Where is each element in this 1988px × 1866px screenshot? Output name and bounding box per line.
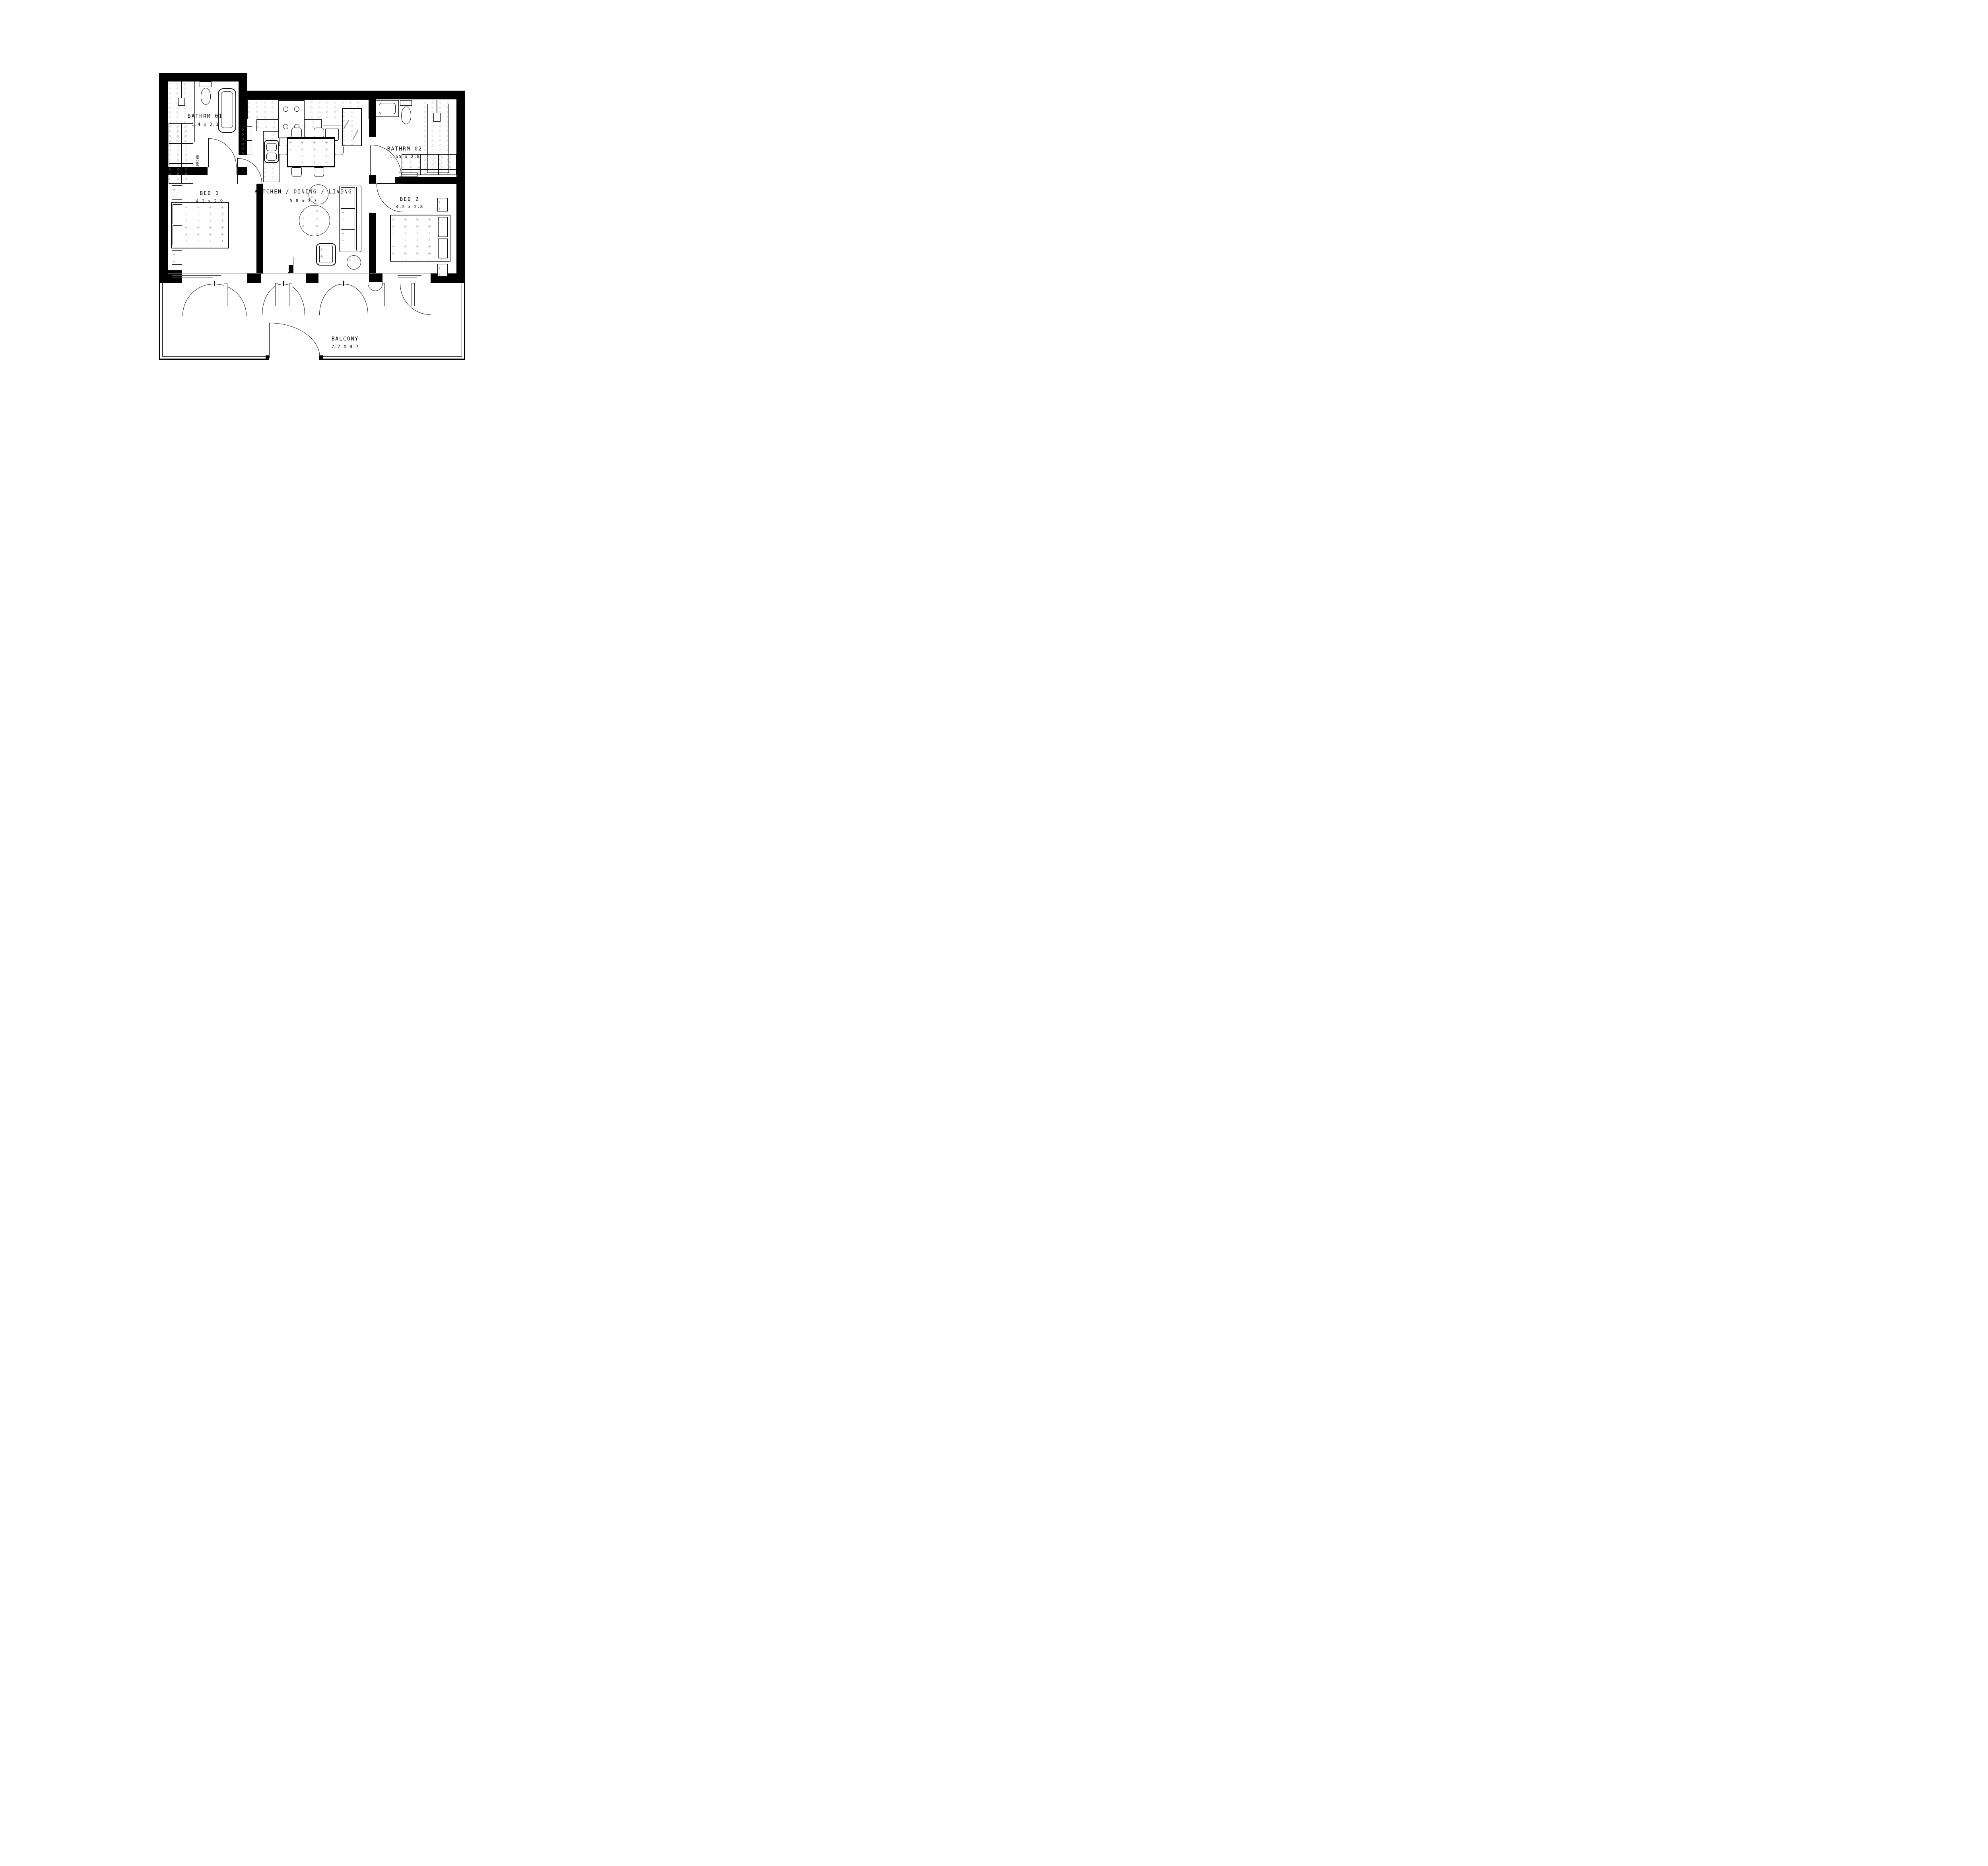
pier-bottom-2 <box>247 273 261 283</box>
wall-top-main <box>239 91 465 99</box>
wall-bed1-kitchen <box>256 184 263 274</box>
sill-bed2-b <box>398 277 417 277</box>
dining-chair-top-1 <box>291 128 302 137</box>
dining-chair-bottom-1 <box>291 167 302 177</box>
bath01-door-swing <box>209 138 237 167</box>
sofa-cushion-3: + + + + + + + + + + + + + + + + + + + + … <box>341 229 355 249</box>
stove-burner-3 <box>283 124 288 129</box>
label-kitchen-dims: 5.8 x 3.7 <box>290 198 317 204</box>
bed1-nightstand-top: + + + + + + + + + + + + + + + + + + + + … <box>172 185 182 200</box>
bath02-toilet-bowl <box>401 107 411 124</box>
bed2-wardrobe-div-h <box>402 169 456 170</box>
living-balcony-door-meet <box>343 281 344 286</box>
bed1-pillow-2 <box>173 225 182 245</box>
label-kitchen-name: KITCHEN / DINING / LIVING <box>254 189 352 195</box>
bed2-wardrobe-label: WARDROBE <box>420 178 439 182</box>
bed1-wardrobe-div-h2 <box>169 163 193 164</box>
bed2-nightstand-bottom: + + + + + + + + + + + + + + + + + + + + … <box>437 264 448 277</box>
wall-left <box>159 73 168 283</box>
label-bathrm01-name: BATHRM 01 <box>188 114 223 120</box>
bed2-pillow-2 <box>438 239 448 258</box>
fridge-hatch: ○ ○ ○ ○ ○ ○ ○ ○ ○ ○ ○ ○ ○ ○ ○ ○ ○ ○ ○ ○ … <box>343 109 361 145</box>
media-unit-base <box>289 265 293 272</box>
dining-table-hatch: + + + + + + + + + + + + + + + + + + + + … <box>289 139 333 165</box>
bath01-toilet-tank <box>200 81 212 87</box>
bed1-nightstand-bottom: + + + + + + + + + + + + + + + + + + + + … <box>172 250 182 265</box>
pier-bottom-3 <box>306 273 318 283</box>
bed1-balcony-door-meet <box>214 281 215 286</box>
bed2-wardrobe-div-v1 <box>420 154 421 175</box>
label-bathrm02-name: BATHRM 02 <box>387 146 422 152</box>
floor-edge-line <box>168 273 456 274</box>
wall-right <box>456 91 465 283</box>
pier-bottom-5 <box>431 273 465 283</box>
pier-bottom-1 <box>159 270 182 283</box>
wall-top-bath01 <box>159 73 247 81</box>
bed1-wardrobe-div-h1 <box>169 143 193 144</box>
oven-drawer-2 <box>266 153 277 161</box>
label-balcony-dims: 7.7 X 9.7 <box>332 344 359 349</box>
bed2-pillow-1 <box>438 217 448 237</box>
bed2-wardrobe-div-v2 <box>438 154 439 175</box>
wall-kitchen-bath02 <box>369 99 376 137</box>
bed2-wardrobe-front <box>402 187 456 187</box>
floor-plan: ○ ○ ○ ○ ○ ○ ○ ○ ○ ○ ○ ○ ○ ○ ○ ○ ○ ○ ○ ○ … <box>0 0 614 438</box>
label-balcony-name: BALCONY <box>332 336 359 342</box>
wall-bed2-living <box>369 213 376 273</box>
dining-chair-bottom-2 <box>314 167 324 177</box>
sill-bed1-b <box>172 277 213 277</box>
pier-bottom-4 <box>369 273 382 283</box>
label-bed1-dims: 4.2 x 2.9 <box>196 199 223 204</box>
bed1-door-swing <box>238 158 262 184</box>
sill-bed2-a <box>398 275 421 276</box>
bed2-nightstand-top: + + + + + + + + + + + + + + + + + + + + … <box>437 198 448 211</box>
label-bed1-name: BED 1 <box>200 191 219 197</box>
oven-drawer-1 <box>266 143 277 151</box>
dining-chair-right <box>335 145 344 155</box>
kitchen-balcony-door-meet <box>283 281 284 286</box>
stove-burner-2 <box>294 107 299 112</box>
coffee-table-large: × × × × × × × × × × × × × × × × × × × × … <box>299 205 330 236</box>
dining-chair-top-2 <box>314 128 324 137</box>
bath02-toilet-tank <box>400 100 412 106</box>
window-frame-kitchen-right <box>289 283 292 306</box>
sill-bed1-a <box>172 275 221 276</box>
stove-burner-1 <box>283 107 288 112</box>
bath02-shower-head <box>433 113 441 122</box>
bath01-toilet-bowl <box>201 88 211 105</box>
window-frame-kitchen-left <box>275 283 278 306</box>
bath01-shower-head <box>178 98 185 106</box>
dining-chair-left <box>278 145 287 155</box>
window-frame-bed2 <box>412 283 415 306</box>
hall-niche-divider <box>241 140 252 141</box>
sofa-cushion-2: + + + + + + + + + + + + + + + + + + + + … <box>341 208 355 228</box>
side-table: × × × × × × × × × × × × × × × × × × × × … <box>347 255 361 270</box>
bed1-wardrobe-div-v <box>181 123 182 184</box>
bath01-shower-glass <box>194 81 195 142</box>
bath02-shower-stem <box>437 100 437 114</box>
window-frame-bed1 <box>224 283 227 306</box>
label-bathrm02-dims: 1.55 x 2.8 <box>390 154 420 159</box>
label-bed2-dims: 4.2 x 2.8 <box>396 204 423 209</box>
label-bed2-name: BED 2 <box>400 197 419 203</box>
label-bathrm01-dims: 1.4 x 2.3 <box>192 122 219 127</box>
bed1-pillow-1 <box>173 204 182 224</box>
bed1-wardrobe-label: WARDROBE <box>196 155 200 173</box>
sofa-back-line <box>356 187 357 250</box>
bath02-vanity-basin <box>379 103 396 114</box>
armchair-cushion: + + + + + + + + + + + + + + + + + + + + … <box>319 246 333 262</box>
bath01-tub-inner <box>221 91 233 128</box>
bath01-shower-stem <box>181 81 182 98</box>
